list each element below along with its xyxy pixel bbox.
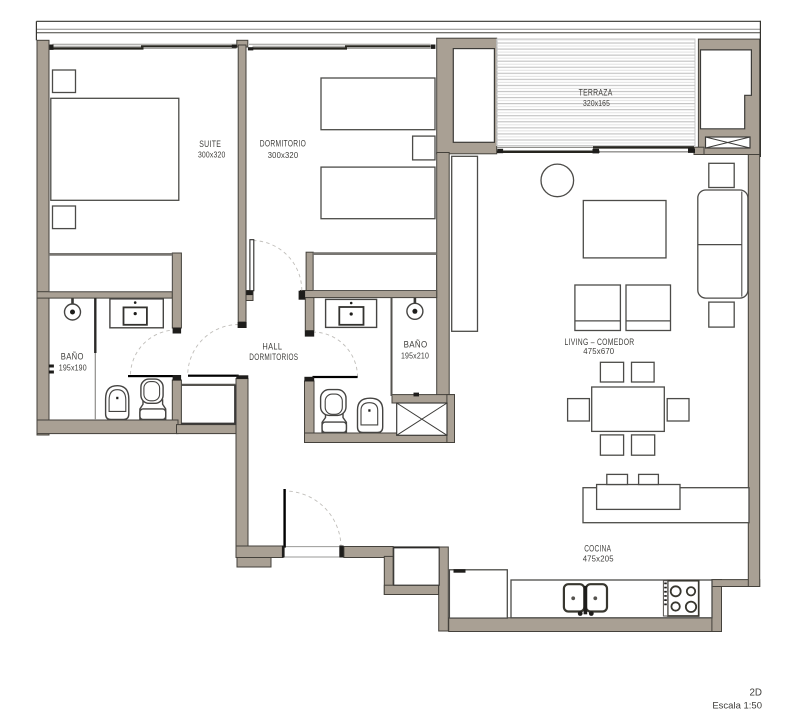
svg-text:DORMITORIO: DORMITORIO	[260, 138, 306, 148]
svg-text:2D: 2D	[749, 688, 762, 699]
svg-text:195x190: 195x190	[59, 362, 87, 372]
svg-text:475x205: 475x205	[583, 554, 614, 564]
svg-text:COCINA: COCINA	[584, 543, 611, 553]
svg-text:300x320: 300x320	[198, 149, 226, 159]
svg-text:475x670: 475x670	[583, 346, 614, 356]
svg-text:320x165: 320x165	[583, 98, 610, 108]
svg-text:Escala 1:50: Escala 1:50	[712, 701, 762, 712]
svg-text:BAÑO: BAÑO	[404, 339, 428, 349]
svg-text:BAÑO: BAÑO	[61, 351, 84, 361]
svg-text:HALL: HALL	[262, 342, 282, 352]
svg-text:TERRAZA: TERRAZA	[579, 88, 613, 98]
svg-text:SUITE: SUITE	[199, 139, 221, 149]
svg-text:300x320: 300x320	[268, 150, 299, 160]
svg-text:DORMITORIOS: DORMITORIOS	[249, 352, 298, 362]
svg-text:195x210: 195x210	[401, 350, 429, 360]
